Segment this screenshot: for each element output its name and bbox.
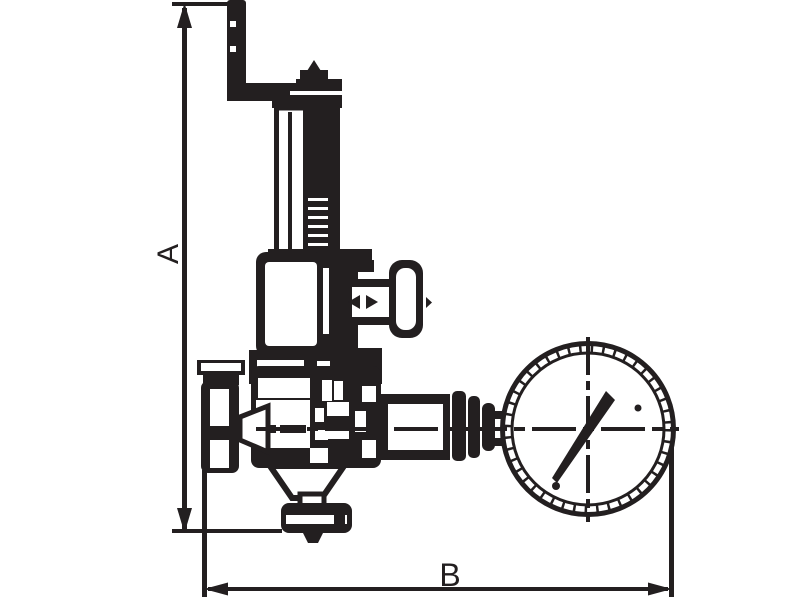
- union-nut: [452, 391, 466, 461]
- drawing-canvas: A B: [0, 0, 800, 598]
- dimension-a-label: A: [152, 244, 185, 264]
- gauge-needle-hub-dot: [552, 482, 560, 490]
- bottom-outlet: [270, 466, 352, 543]
- dimension-a-extension-top: [172, 2, 234, 6]
- dimension-b-extension-left: [202, 470, 207, 597]
- dimension-b-arrow-left: [204, 583, 228, 596]
- valve-technical-drawing: A B: [0, 0, 800, 598]
- gauge-piping: [381, 391, 508, 461]
- dimension-b-label: B: [439, 557, 460, 593]
- spindle-top-nut: [296, 79, 342, 91]
- dimension-a-extension-bottom: [172, 529, 282, 533]
- outlet-tip: [303, 533, 323, 543]
- dimension-a-arrow-top: [177, 3, 192, 28]
- spindle-tip: [307, 60, 321, 71]
- crank-handle: [227, 0, 303, 101]
- gauge-face-dot: [635, 405, 642, 412]
- dimension-b-line: [208, 587, 668, 591]
- dimension-b-arrow-right: [648, 583, 672, 596]
- dimension-a-line: [182, 8, 187, 530]
